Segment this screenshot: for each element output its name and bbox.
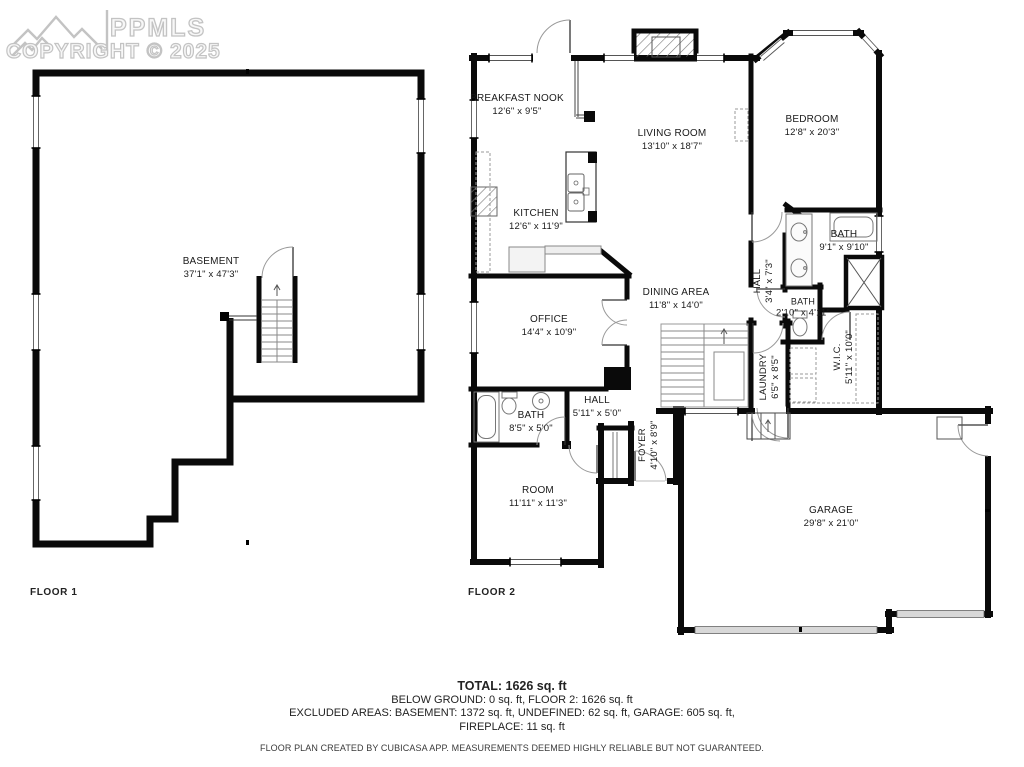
- counter-bar: [545, 246, 601, 254]
- vanity: [786, 214, 812, 286]
- half-wall: [575, 61, 588, 118]
- toilet-icon: [502, 392, 517, 398]
- room-label-living-room: LIVING ROOM 13'10" x 18'7": [638, 128, 707, 152]
- garage-steps: [747, 413, 790, 439]
- shower-icon: [846, 257, 882, 308]
- room-label-bath-small: BATH 2'10" x 4'11": [776, 296, 830, 319]
- room-label-room: ROOM 11'11" x 11'3": [509, 485, 567, 509]
- logo-brand-text: PPMLS: [110, 14, 206, 43]
- wall-block: [604, 367, 631, 390]
- ppmls-logo: PPMLS COPYRIGHT © 2025: [6, 4, 236, 64]
- summary-total: TOTAL: 1626 sq. ft: [0, 680, 1024, 694]
- room-label-basement: BASEMENT 37'1" x 47'3": [183, 256, 240, 280]
- logo-copyright-text: COPYRIGHT © 2025: [6, 40, 221, 64]
- room-label-kitchen: KITCHEN 12'6" x 11'9": [509, 208, 563, 232]
- room-label-dining-area: DINING AREA 11'8" x 14'0": [643, 287, 710, 311]
- kitchen-island: [566, 152, 597, 222]
- stove-icon: [471, 187, 497, 216]
- room-label-breakfast-nook: BREAKFAST NOOK 12'6" x 9'5": [470, 93, 564, 117]
- fireplace: [634, 31, 696, 59]
- niche: [735, 109, 748, 141]
- room-label-laundry: LAUNDRY 6'5" x 8'5": [758, 354, 782, 401]
- room-label-bath2: BATH 8'5" x 5'0": [509, 410, 553, 434]
- door-openings: [634, 407, 993, 486]
- summary-line2: BELOW GROUND: 0 sq. ft, FLOOR 2: 1626 sq…: [0, 694, 1024, 708]
- floor1-caption: FLOOR 1: [30, 587, 78, 598]
- sink-icon: [533, 393, 550, 410]
- area-summary: TOTAL: 1626 sq. ft BELOW GROUND: 0 sq. f…: [0, 680, 1024, 753]
- closet-shelf: [613, 432, 617, 478]
- floor-plan-page: PPMLS COPYRIGHT © 2025 BASEMENT 37'1" x …: [0, 0, 1024, 767]
- floor1-plan: [32, 69, 426, 545]
- wall-post: [562, 441, 571, 449]
- room-label-bath-main: BATH 9'1" x 9'10": [819, 229, 868, 253]
- room-label-wic: W.I.C. 5'11" x 10'0": [832, 330, 856, 384]
- room-label-hall-upper: HALL 3'4" x 7'3": [752, 259, 776, 303]
- room-label-foyer: FOYER 4'10" x 8'9": [637, 420, 661, 469]
- summary-disclaimer: FLOOR PLAN CREATED BY CUBICASA APP. MEAS…: [0, 743, 1024, 753]
- summary-line4: FIREPLACE: 11 sq. ft: [0, 721, 1024, 735]
- summary-line3: EXCLUDED AREAS: BASEMENT: 1372 sq. ft, U…: [0, 707, 1024, 721]
- counter: [509, 247, 545, 272]
- room-label-hall-lower: HALL 5'11" x 5'0": [573, 395, 622, 419]
- room-label-office: OFFICE 14'4" x 10'9": [522, 314, 577, 338]
- basement-walls: [36, 73, 421, 544]
- floor2-caption: FLOOR 2: [468, 587, 516, 598]
- room-label-garage: GARAGE 29'8" x 21'0": [804, 505, 859, 529]
- room-label-bedroom: BEDROOM 12'8" x 20'3": [785, 114, 840, 138]
- staircase: [661, 324, 748, 407]
- wall-post: [584, 111, 595, 122]
